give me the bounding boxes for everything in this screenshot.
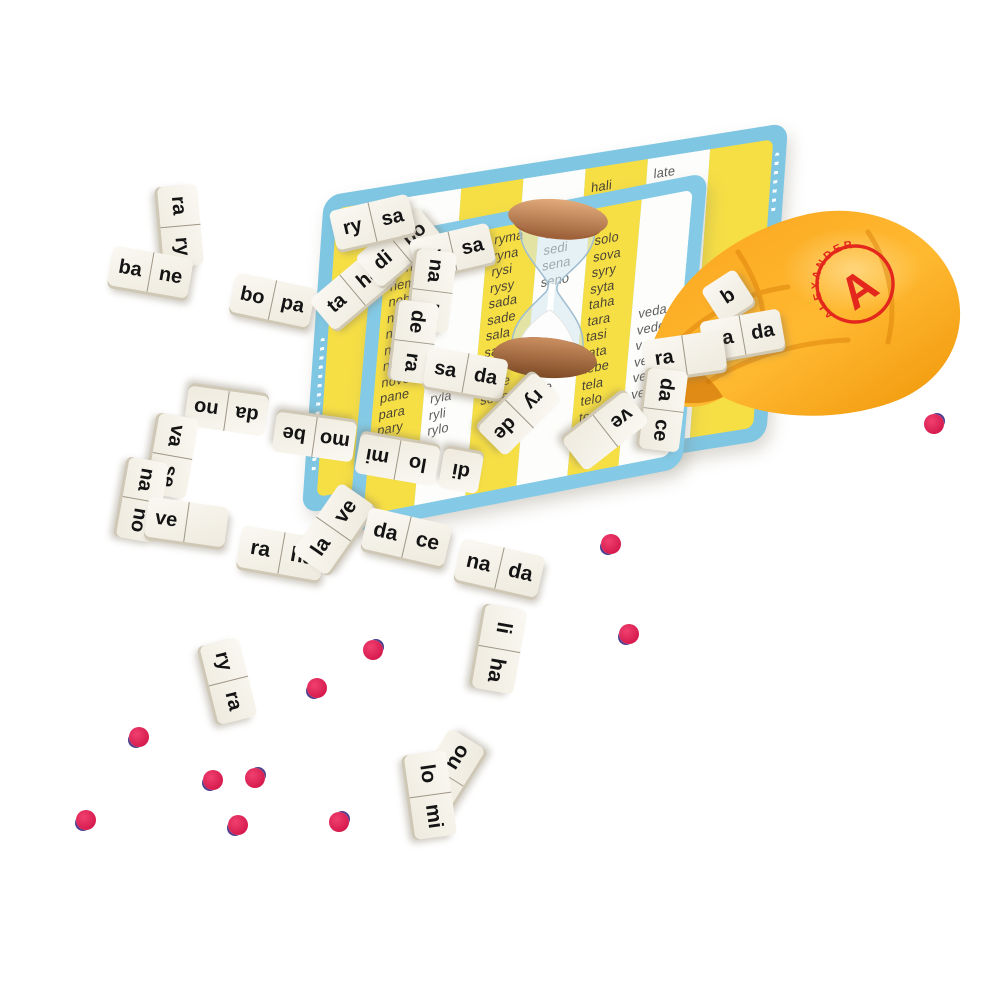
tile-syllable: na [123,457,169,503]
score-token [329,812,349,832]
domino-tile: li ha [471,603,527,694]
tile-syllable: lo [395,440,441,486]
tile-syllable: mi [354,433,401,480]
tile-syllable [183,502,229,547]
domino-tile: bo pa [229,272,317,328]
score-token [76,810,96,830]
tile-syllable [681,330,727,375]
tile-syllable: ha [471,645,520,695]
tile-syllable: da [644,367,689,412]
domino-half-tile: di [438,448,484,494]
tile-syllable: da [739,308,786,355]
tile-syllable: ce [639,407,684,453]
score-token [245,768,265,788]
tile-syllable: da [462,353,509,400]
hourglass-sand-timer [495,192,610,382]
tile-syllable: ra [236,525,285,574]
tile-syllable: da [224,391,269,436]
tile-syllable: ra [209,676,258,725]
domino-tile: na da [453,538,545,598]
tile-syllable: ne [147,252,194,299]
score-token [129,727,149,747]
tile-syllable: ce [401,516,452,567]
tile-syllable: va [153,413,199,459]
domino-tile: ve [144,497,230,548]
tile-syllable: lo [404,750,451,797]
tile-syllable: be [272,412,318,457]
tile-syllable: li [479,603,528,652]
tile-syllable: na [413,248,458,293]
tile-syllable: da [494,547,545,598]
tile-syllable: ra [157,184,200,227]
tile-syllable: de [395,299,440,344]
score-token [228,815,248,835]
tile-syllable: ba [107,245,153,291]
game-photo-scene: hali halo hana hasi late lava lice lige … [0,0,1000,1000]
score-token [619,624,639,644]
tile-syllable: pa [268,280,316,328]
domino-tile: da ce [360,507,452,567]
tile-syllable: mi [410,792,458,840]
tile-syllable: ve [144,497,189,542]
tile-syllable: mo [312,417,357,462]
tile-syllable: sa [422,346,468,392]
score-token [924,414,944,434]
score-token [363,640,383,660]
tile-syllable: di [438,448,484,494]
domino-tile: ry ra [199,637,257,725]
score-token [601,534,621,554]
score-token [307,678,327,698]
score-token [203,770,223,790]
